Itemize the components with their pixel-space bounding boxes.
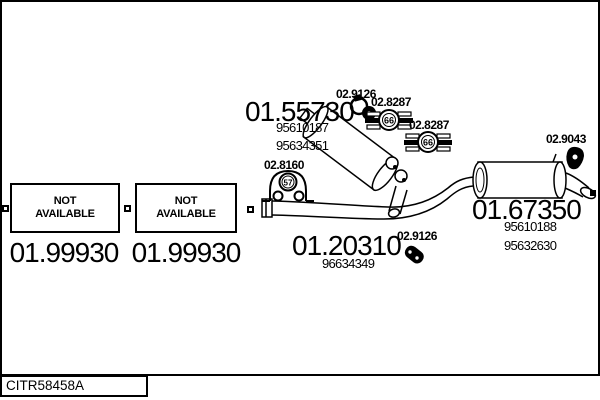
accessory-number-mount: 02.8160	[264, 159, 304, 171]
clamp-icon-bottom	[402, 243, 426, 266]
exhaust-parts-diagram: 66 66	[0, 0, 600, 400]
not-available-line1: NOT	[54, 195, 77, 208]
part-number-na-1: 01.99930	[8, 239, 120, 267]
oe-ref-rear-silencer-1: 95610188	[504, 220, 556, 233]
accessory-number-clamp-bottom: 02.9126	[397, 230, 437, 242]
oe-ref-front-pipe: 96634349	[322, 257, 374, 270]
accessory-number-grommet: 02.9043	[546, 133, 586, 145]
connector-marker	[2, 205, 9, 212]
oe-ref-middle-silencer-2: 95634351	[276, 139, 328, 152]
not-available-box-1: NOT AVAILABLE	[10, 183, 120, 233]
not-available-box-2: NOT AVAILABLE	[135, 183, 237, 233]
hanger-icon-lower: 66	[404, 132, 452, 152]
hanger-icon-upper: 66	[365, 110, 413, 130]
part-number-na-2: 01.99930	[131, 239, 241, 267]
not-available-line2: AVAILABLE	[156, 208, 216, 221]
hanger-lower-type-code: 66	[423, 138, 433, 148]
drawing-code: CITR58458A	[6, 378, 84, 393]
not-available-line2: AVAILABLE	[35, 208, 95, 221]
accessory-number-clamp-top: 02.9126	[336, 88, 376, 100]
connector-marker	[247, 206, 254, 213]
grommet-icon	[566, 147, 584, 169]
accessory-number-hanger-lower: 02.8287	[409, 119, 449, 131]
oe-ref-middle-silencer-1: 95610187	[276, 121, 328, 134]
mount-type-code: 57	[284, 179, 293, 188]
accessory-number-hanger-upper: 02.8287	[371, 96, 411, 108]
hanger-upper-type-code: 66	[384, 116, 394, 126]
connector-marker	[124, 205, 131, 212]
oe-ref-rear-silencer-2: 95632630	[504, 239, 556, 252]
mount-icon: 57	[262, 171, 314, 201]
drawing-code-box: CITR58458A	[0, 375, 148, 397]
not-available-line1: NOT	[175, 195, 198, 208]
connector-marker	[590, 190, 596, 196]
